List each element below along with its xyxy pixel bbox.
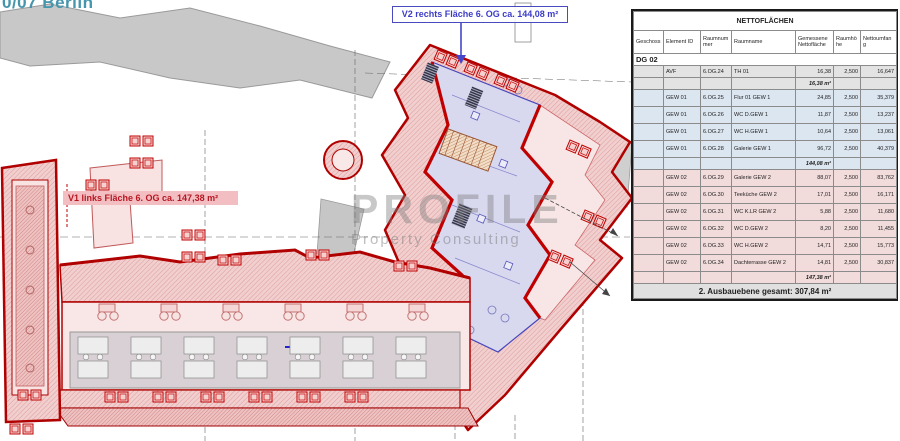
cell-geschoss — [634, 255, 664, 272]
cell-empty — [664, 158, 701, 170]
cell-raumnummer: 6.OG.31 — [701, 204, 732, 221]
cell-umfang: 13,237 — [861, 107, 897, 124]
cell-flaeche: 11,87 — [796, 107, 834, 124]
cell-element-id: GEW 01 — [664, 124, 701, 141]
cell-umfang: 15,773 — [861, 238, 897, 255]
cell-hoehe: 2,500 — [834, 238, 861, 255]
cell-element-id: GEW 02 — [664, 204, 701, 221]
cell-geschoss — [634, 124, 664, 141]
net-areas-table-panel: NETTOFLÄCHEN Geschoss Element ID Raumnum… — [631, 9, 898, 301]
table-row: GEW 016.OG.28Galerie GEW 196,722,50040,3… — [634, 141, 897, 158]
cell-empty — [701, 158, 732, 170]
table-header-row: Geschoss Element ID Raumnummer Raumname … — [634, 31, 897, 54]
cell-raumname: Flur 01 GEW 1 — [732, 90, 796, 107]
cell-flaeche: 96,72 — [796, 141, 834, 158]
col-raumhoehe: Raumhöhe — [834, 31, 861, 54]
col-nettoumfang: Nettoumfang — [861, 31, 897, 54]
table-row: GEW 016.OG.25Flur 01 GEW 124,852,50035,3… — [634, 90, 897, 107]
cell-raumnummer: 6.OG.27 — [701, 124, 732, 141]
cell-empty — [861, 272, 897, 284]
cell-geschoss — [634, 141, 664, 158]
cell-empty — [634, 78, 664, 90]
cell-umfang: 11,455 — [861, 221, 897, 238]
cell-element-id: GEW 02 — [664, 255, 701, 272]
floorplan-page: 0/07 Berlin — [0, 0, 900, 441]
cell-umfang: 30,837 — [861, 255, 897, 272]
cell-raumnummer: 6.OG.24 — [701, 66, 732, 78]
table-row: GEW 026.OG.34Dachterrasse GEW 214,812,50… — [634, 255, 897, 272]
cell-empty — [861, 158, 897, 170]
table-row: GEW 026.OG.30Teeküche GEW 217,012,50016,… — [634, 187, 897, 204]
page-title: 0/07 Berlin — [2, 0, 94, 13]
cell-geschoss — [634, 221, 664, 238]
cell-flaeche: 16,38 — [796, 66, 834, 78]
cell-raumname: TH 01 — [732, 66, 796, 78]
cell-hoehe: 2,500 — [834, 124, 861, 141]
cell-empty — [834, 272, 861, 284]
cell-raumnummer: 6.OG.32 — [701, 221, 732, 238]
cell-element-id: GEW 01 — [664, 141, 701, 158]
cell-element-id: GEW 01 — [664, 107, 701, 124]
section-row: DG 02 — [634, 54, 897, 66]
cell-geschoss — [634, 90, 664, 107]
cell-raumnummer: 6.OG.25 — [701, 90, 732, 107]
cell-raumname: Dachterrasse GEW 2 — [732, 255, 796, 272]
cell-hoehe: 2,500 — [834, 187, 861, 204]
table-row: AVF6.OG.24TH 0116,382,50016,647 — [634, 66, 897, 78]
subtotal-value: 144,08 m² — [796, 158, 834, 170]
cell-empty — [664, 78, 701, 90]
col-raumnummer: Raumnummer — [701, 31, 732, 54]
cell-hoehe: 2,500 — [834, 204, 861, 221]
table-row: GEW 026.OG.33WC H.GEW 214,712,50015,773 — [634, 238, 897, 255]
col-nettoflaeche: Gemessene Nettofläche — [796, 31, 834, 54]
cell-raumname: Teeküche GEW 2 — [732, 187, 796, 204]
subtotal-row: 147,38 m² — [634, 272, 897, 284]
cell-raumnummer: 6.OG.34 — [701, 255, 732, 272]
col-element-id: Element ID — [664, 31, 701, 54]
table-row: GEW 026.OG.29Galerie GEW 288,072,50083,7… — [634, 170, 897, 187]
cell-umfang: 83,762 — [861, 170, 897, 187]
cell-geschoss — [634, 204, 664, 221]
v1-area-label: V1 links Fläche 6. OG ca. 147,38 m² — [63, 191, 238, 205]
cell-raumnummer: 6.OG.30 — [701, 187, 732, 204]
section-label: DG 02 — [634, 54, 897, 66]
floor-plan-drawing — [0, 0, 632, 441]
cell-umfang: 35,379 — [861, 90, 897, 107]
table-footer-total: 2. Ausbauebene gesamt: 307,84 m² — [634, 284, 897, 299]
cell-element-id: GEW 02 — [664, 187, 701, 204]
cell-hoehe: 2,500 — [834, 66, 861, 78]
table-footer-row: 2. Ausbauebene gesamt: 307,84 m² — [634, 284, 897, 299]
cell-flaeche: 17,01 — [796, 187, 834, 204]
cell-geschoss — [634, 187, 664, 204]
cell-empty — [834, 158, 861, 170]
cell-raumnummer: 6.OG.28 — [701, 141, 732, 158]
cell-empty — [664, 272, 701, 284]
turret — [324, 141, 362, 179]
cell-flaeche: 10,64 — [796, 124, 834, 141]
cell-geschoss — [634, 170, 664, 187]
table-row: GEW 016.OG.27WC H.GEW 110,642,50013,061 — [634, 124, 897, 141]
v2-area-label: V2 rechts Fläche 6. OG ca. 144,08 m² — [392, 6, 568, 23]
cell-hoehe: 2,500 — [834, 141, 861, 158]
subtotal-value: 16,38 m² — [796, 78, 834, 90]
cell-hoehe: 2,500 — [834, 221, 861, 238]
cell-raumnummer: 6.OG.33 — [701, 238, 732, 255]
building-left-wing — [2, 160, 60, 422]
table-row: GEW 026.OG.31WC K.LR GEW 25,882,50011,68… — [634, 204, 897, 221]
table-title: NETTOFLÄCHEN — [634, 12, 897, 31]
cell-umfang: 40,379 — [861, 141, 897, 158]
cell-hoehe: 2,500 — [834, 107, 861, 124]
cell-flaeche: 8,20 — [796, 221, 834, 238]
cell-umfang: 11,680 — [861, 204, 897, 221]
cell-flaeche: 24,85 — [796, 90, 834, 107]
cell-element-id: GEW 02 — [664, 170, 701, 187]
cell-empty — [732, 78, 796, 90]
cell-flaeche: 5,88 — [796, 204, 834, 221]
cell-empty — [732, 158, 796, 170]
table-title-row: NETTOFLÄCHEN — [634, 12, 897, 31]
cell-flaeche: 14,71 — [796, 238, 834, 255]
building-bottom-wing — [8, 250, 478, 426]
cell-element-id: GEW 01 — [664, 90, 701, 107]
table-row: GEW 016.OG.26WC D.GEW 111,872,50013,237 — [634, 107, 897, 124]
col-geschoss: Geschoss — [634, 31, 664, 54]
cell-empty — [834, 78, 861, 90]
cell-empty — [861, 78, 897, 90]
cell-raumnummer: 6.OG.29 — [701, 170, 732, 187]
cell-raumname: WC D.GEW 2 — [732, 221, 796, 238]
table-row: GEW 026.OG.32WC D.GEW 28,202,50011,455 — [634, 221, 897, 238]
col-raumname: Raumname — [732, 31, 796, 54]
cell-element-id: GEW 02 — [664, 221, 701, 238]
subtotal-row: 16,38 m² — [634, 78, 897, 90]
cell-empty — [732, 272, 796, 284]
cell-geschoss — [634, 107, 664, 124]
cell-raumname: WC H.GEW 2 — [732, 238, 796, 255]
cell-element-id: AVF — [664, 66, 701, 78]
subtotal-value: 147,38 m² — [796, 272, 834, 284]
cell-umfang: 16,647 — [861, 66, 897, 78]
cell-hoehe: 2,500 — [834, 170, 861, 187]
cell-flaeche: 88,07 — [796, 170, 834, 187]
cell-raumname: WC H.GEW 1 — [732, 124, 796, 141]
net-areas-table: NETTOFLÄCHEN Geschoss Element ID Raumnum… — [633, 11, 897, 299]
cell-geschoss — [634, 66, 664, 78]
cell-raumname: WC D.GEW 1 — [732, 107, 796, 124]
cell-raumname: Galerie GEW 2 — [732, 170, 796, 187]
cell-hoehe: 2,500 — [834, 90, 861, 107]
cell-hoehe: 2,500 — [834, 255, 861, 272]
subtotal-row: 144,08 m² — [634, 158, 897, 170]
cell-raumname: Galerie GEW 1 — [732, 141, 796, 158]
cell-empty — [701, 272, 732, 284]
cell-empty — [634, 272, 664, 284]
cell-raumnummer: 6.OG.26 — [701, 107, 732, 124]
cell-empty — [701, 78, 732, 90]
cell-raumname: WC K.LR GEW 2 — [732, 204, 796, 221]
cell-element-id: GEW 02 — [664, 238, 701, 255]
cell-umfang: 13,061 — [861, 124, 897, 141]
cell-flaeche: 14,81 — [796, 255, 834, 272]
cell-empty — [634, 158, 664, 170]
cell-umfang: 16,171 — [861, 187, 897, 204]
cell-geschoss — [634, 238, 664, 255]
